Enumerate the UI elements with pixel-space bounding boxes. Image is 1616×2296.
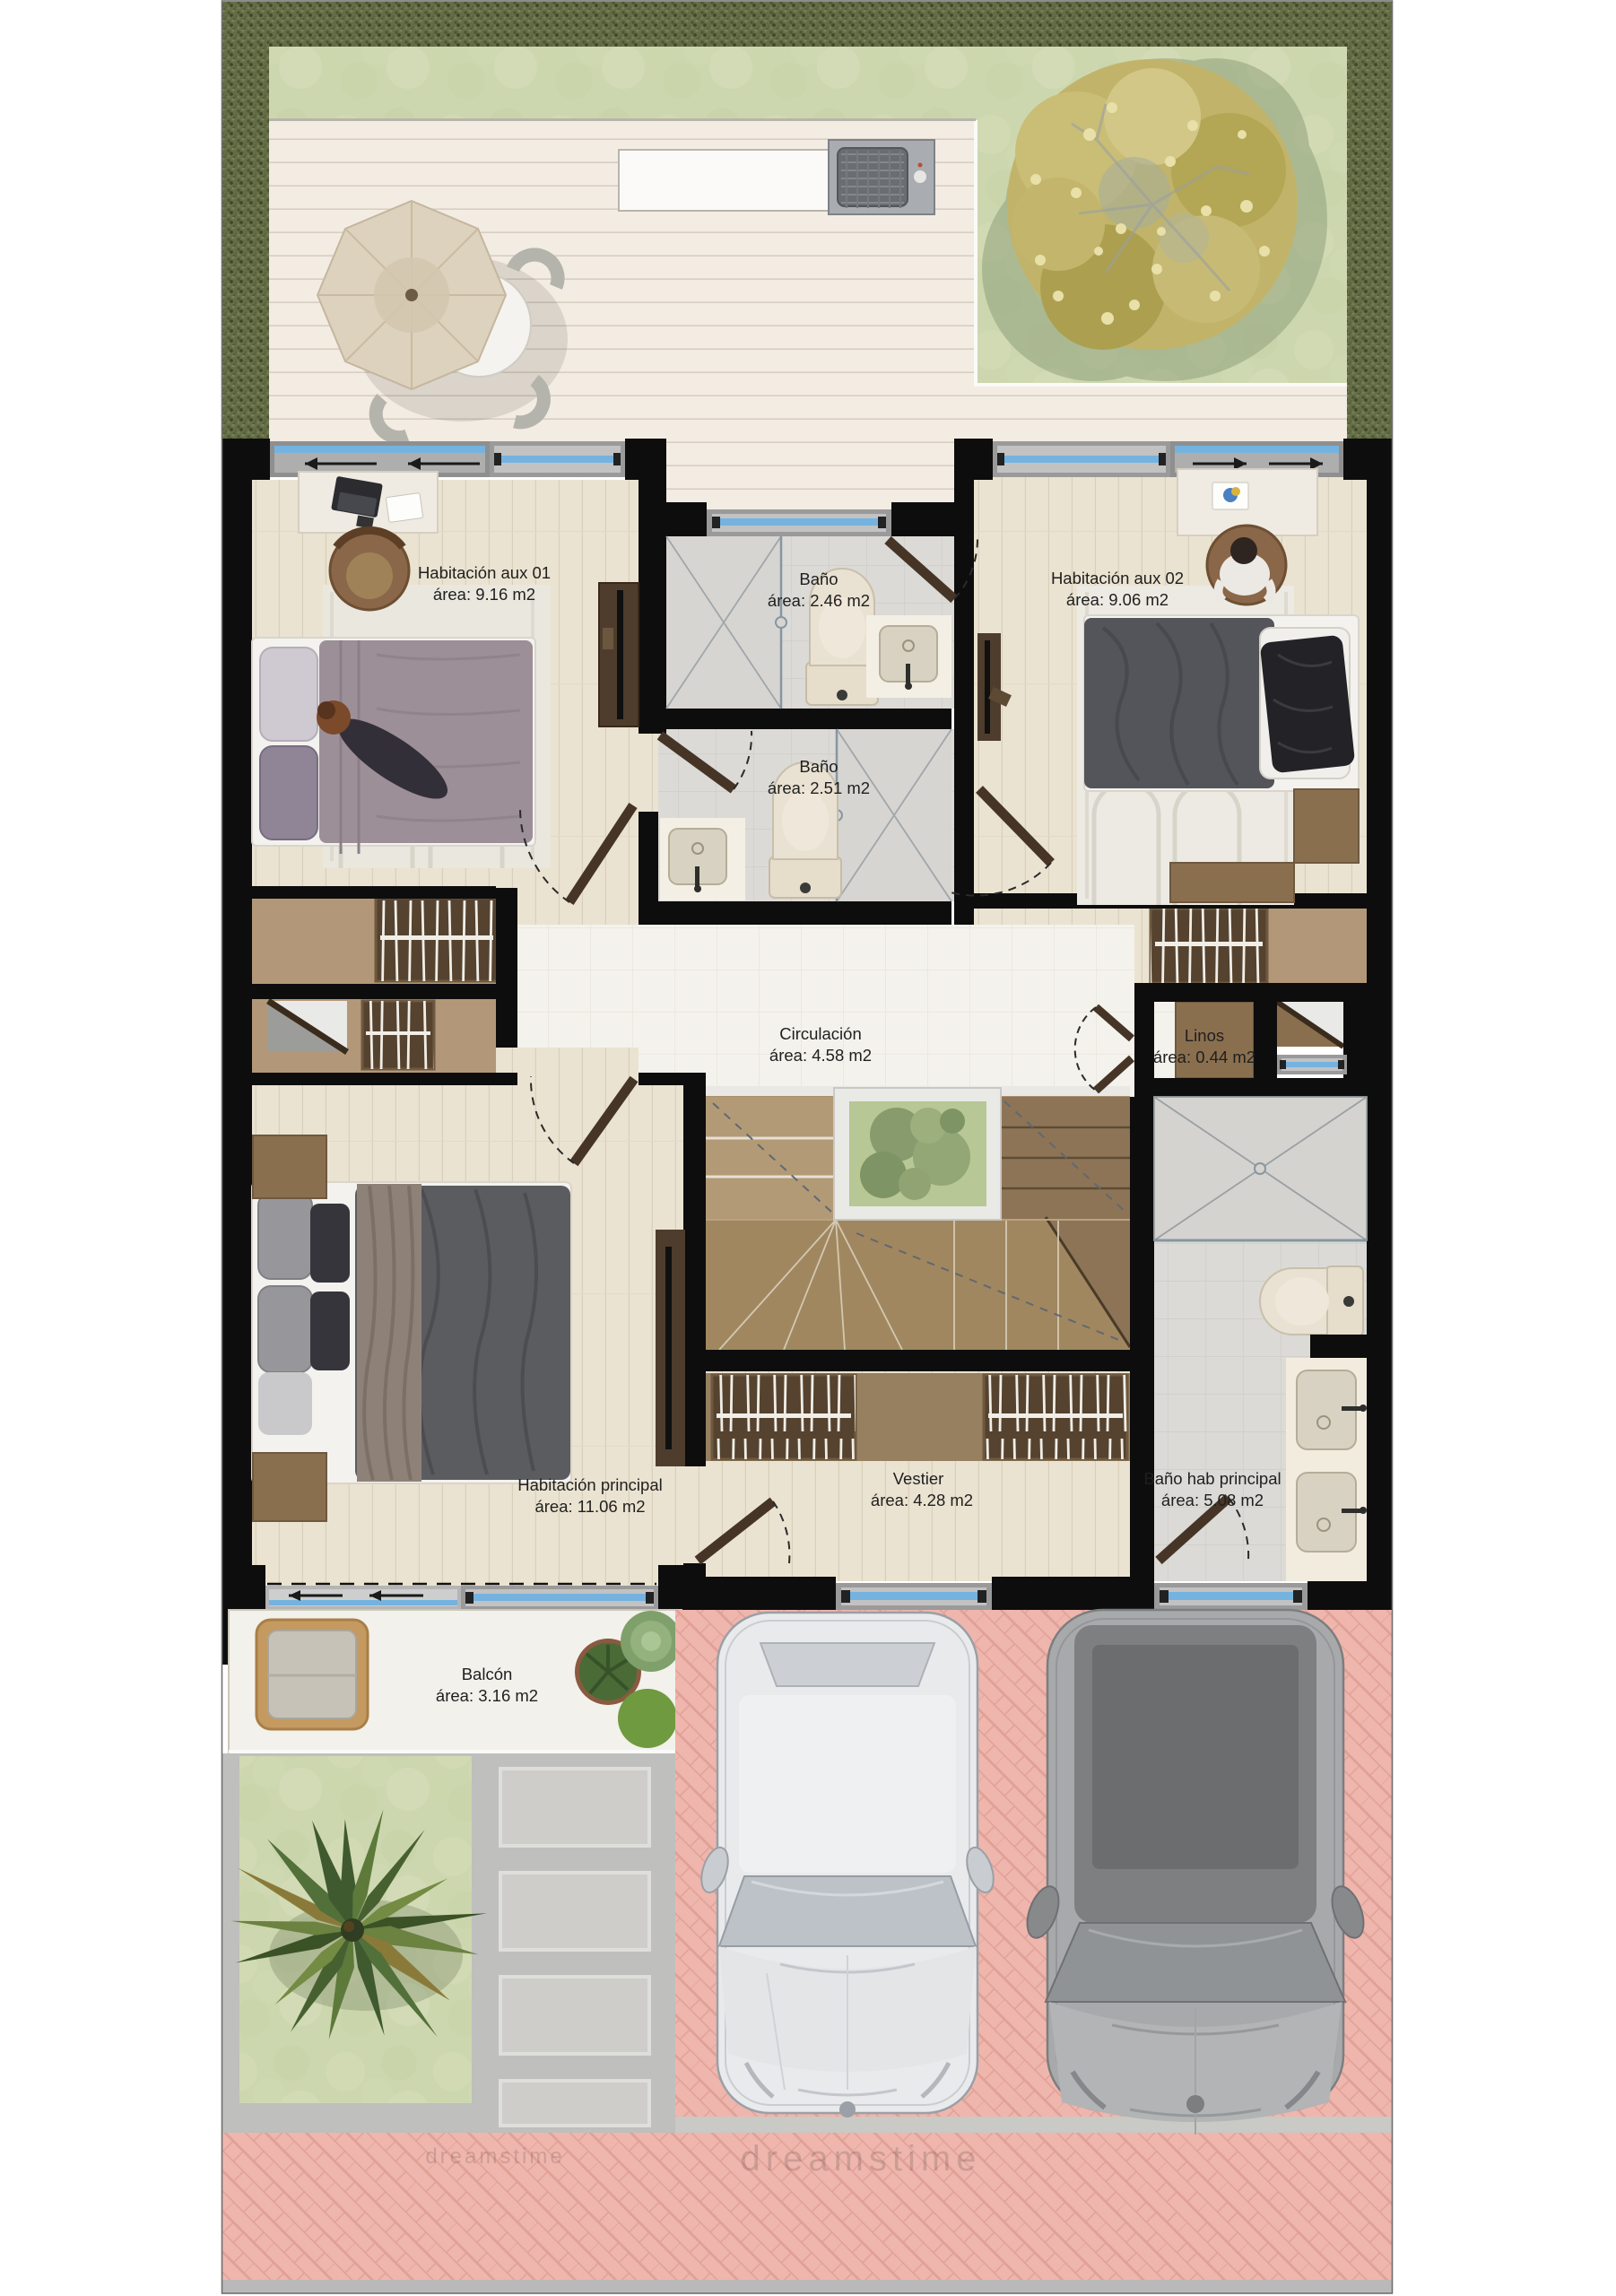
svg-text:Circulación: Circulación	[779, 1024, 862, 1043]
svg-text:Balcón: Balcón	[462, 1665, 513, 1683]
svg-text:dreamstime: dreamstime	[741, 2139, 982, 2179]
svg-text:área: 9.16 m2: área: 9.16 m2	[433, 585, 535, 604]
svg-text:Vestier: Vestier	[893, 1469, 944, 1488]
svg-text:área: 11.06 m2: área: 11.06 m2	[534, 1497, 645, 1516]
svg-text:área: 5.08 m2: área: 5.08 m2	[1161, 1491, 1264, 1509]
svg-text:Habitación aux 01: Habitación aux 01	[418, 563, 551, 582]
svg-text:área: 2.51 m2: área: 2.51 m2	[768, 778, 870, 797]
svg-text:Habitación principal: Habitación principal	[517, 1475, 662, 1494]
svg-text:dreamstime: dreamstime	[425, 2144, 564, 2169]
svg-text:área: 4.58 m2: área: 4.58 m2	[769, 1046, 872, 1065]
svg-text:Baño hab principal: Baño hab principal	[1143, 1469, 1281, 1488]
svg-text:área: 9.06 m2: área: 9.06 m2	[1066, 590, 1169, 609]
svg-text:área: 4.28 m2: área: 4.28 m2	[871, 1491, 973, 1509]
svg-text:área: 0.44 m2: área: 0.44 m2	[1153, 1048, 1255, 1066]
svg-text:área: 3.16 m2: área: 3.16 m2	[436, 1686, 538, 1705]
svg-text:Baño: Baño	[799, 757, 838, 776]
svg-text:Habitación aux 02: Habitación aux 02	[1051, 569, 1184, 587]
svg-text:Baño: Baño	[799, 570, 838, 588]
svg-text:área: 2.46 m2: área: 2.46 m2	[768, 591, 870, 610]
svg-text:Linos: Linos	[1185, 1026, 1224, 1045]
